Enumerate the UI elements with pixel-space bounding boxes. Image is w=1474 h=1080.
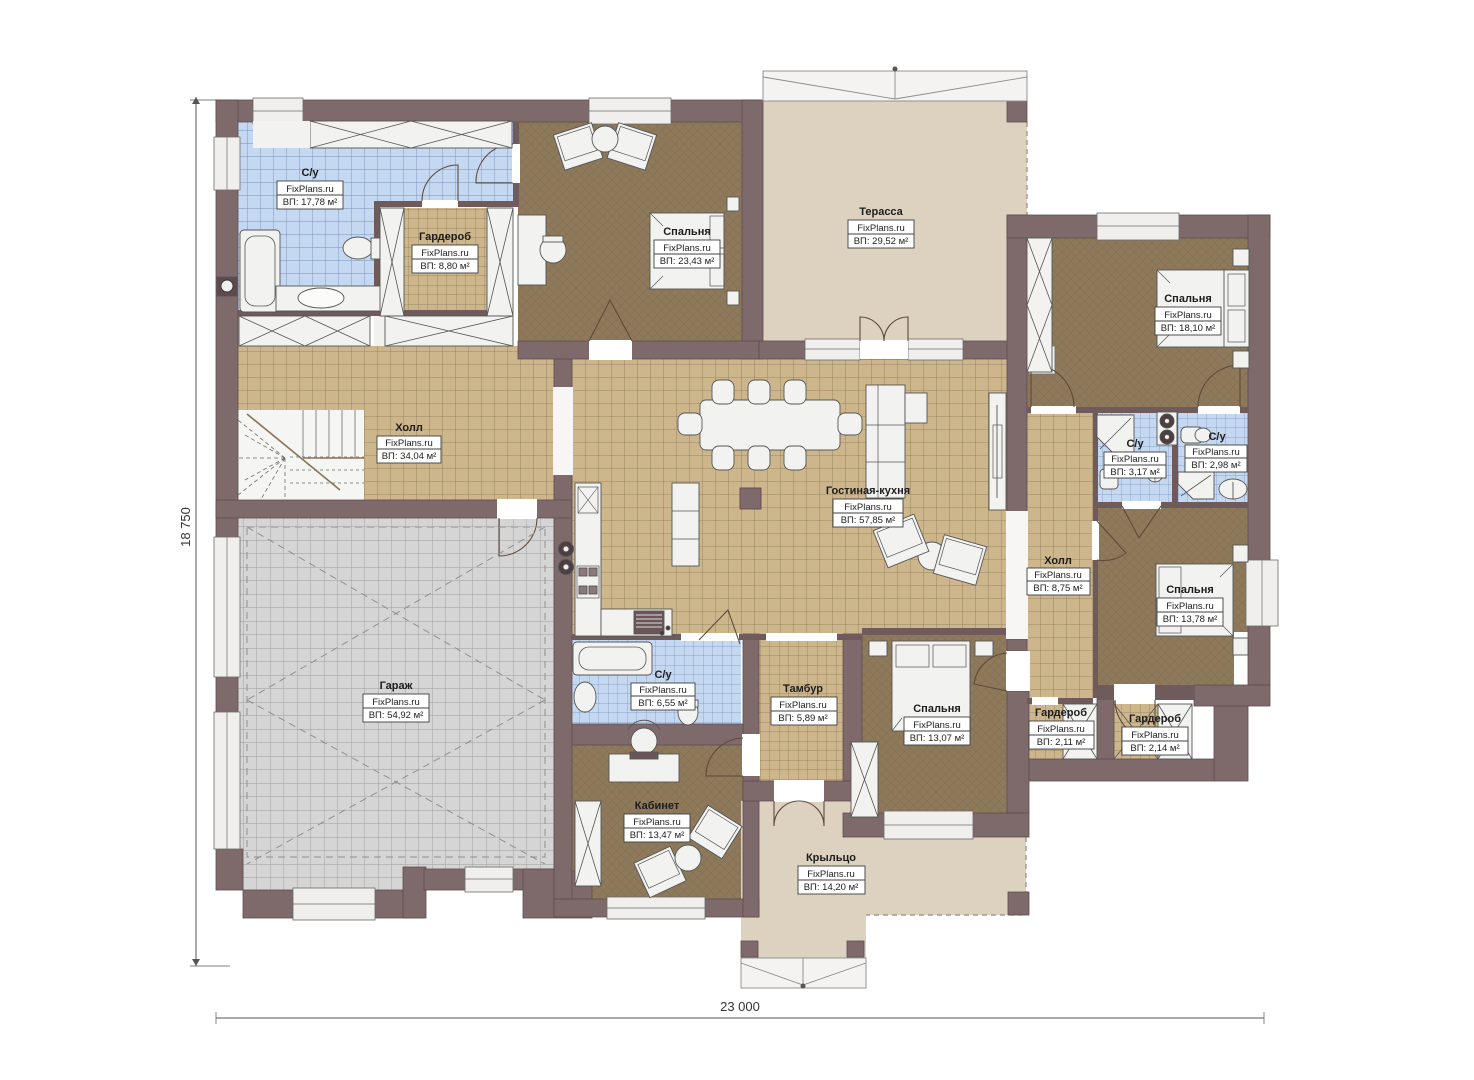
svg-text:FixPlans.ru: FixPlans.ru (913, 720, 961, 731)
svg-text:Спальня: Спальня (913, 703, 961, 715)
svg-text:FixPlans.ru: FixPlans.ru (779, 700, 827, 711)
svg-text:Гостиная-кухня: Гостиная-кухня (826, 485, 910, 497)
svg-text:С/у: С/у (654, 669, 672, 681)
svg-text:FixPlans.ru: FixPlans.ru (663, 243, 711, 254)
svg-text:FixPlans.ru: FixPlans.ru (1034, 570, 1082, 581)
svg-text:FixPlans.ru: FixPlans.ru (633, 817, 681, 828)
svg-text:ВП: 34,04 м²: ВП: 34,04 м² (382, 451, 437, 462)
svg-text:Спальня: Спальня (1166, 584, 1214, 596)
svg-text:ВП: 54,92 м²: ВП: 54,92 м² (369, 710, 424, 721)
svg-text:Спальня: Спальня (663, 226, 711, 238)
svg-text:FixPlans.ru: FixPlans.ru (372, 697, 420, 708)
svg-text:FixPlans.ru: FixPlans.ru (844, 502, 892, 513)
svg-text:С/у: С/у (1126, 438, 1144, 450)
svg-text:FixPlans.ru: FixPlans.ru (1166, 601, 1214, 612)
svg-text:Терасса: Терасса (859, 206, 903, 218)
svg-text:ВП: 57,85 м²: ВП: 57,85 м² (841, 515, 896, 526)
svg-text:ВП: 5,89 м²: ВП: 5,89 м² (778, 713, 827, 724)
svg-text:FixPlans.ru: FixPlans.ru (1164, 310, 1212, 321)
svg-text:Спальня: Спальня (1164, 293, 1212, 305)
svg-text:ВП: 3,17 м²: ВП: 3,17 м² (1110, 467, 1159, 478)
svg-text:ВП: 29,52 м²: ВП: 29,52 м² (854, 236, 909, 247)
svg-text:ВП: 8,80 м²: ВП: 8,80 м² (420, 261, 469, 272)
svg-text:ВП: 2,14 м²: ВП: 2,14 м² (1130, 743, 1179, 754)
svg-text:ВП: 6,55 м²: ВП: 6,55 м² (638, 698, 687, 709)
svg-text:18 750: 18 750 (178, 507, 193, 547)
svg-text:FixPlans.ru: FixPlans.ru (421, 248, 469, 259)
svg-text:FixPlans.ru: FixPlans.ru (1192, 447, 1240, 458)
svg-text:С/у: С/у (1208, 431, 1226, 443)
svg-text:FixPlans.ru: FixPlans.ru (1131, 730, 1179, 741)
svg-text:23 000: 23 000 (720, 999, 760, 1014)
svg-text:FixPlans.ru: FixPlans.ru (857, 223, 905, 234)
svg-text:ВП: 23,43 м²: ВП: 23,43 м² (660, 256, 715, 267)
svg-text:Гараж: Гараж (380, 680, 413, 692)
svg-text:FixPlans.ru: FixPlans.ru (1037, 724, 1085, 735)
svg-text:ВП: 13,07 м²: ВП: 13,07 м² (910, 733, 965, 744)
svg-text:Крыльцо: Крыльцо (806, 852, 856, 864)
svg-text:Гардероб: Гардероб (1035, 707, 1087, 719)
svg-text:Холл: Холл (1044, 555, 1072, 567)
svg-text:Холл: Холл (395, 422, 423, 434)
svg-text:ВП: 2,98 м²: ВП: 2,98 м² (1191, 460, 1240, 471)
svg-text:FixPlans.ru: FixPlans.ru (639, 685, 687, 696)
svg-text:ВП: 14,20 м²: ВП: 14,20 м² (804, 882, 859, 893)
svg-text:ВП: 18,10 м²: ВП: 18,10 м² (1161, 323, 1216, 334)
svg-text:ВП: 13,78 м²: ВП: 13,78 м² (1163, 614, 1218, 625)
svg-text:FixPlans.ru: FixPlans.ru (385, 438, 433, 449)
svg-text:FixPlans.ru: FixPlans.ru (1111, 454, 1159, 465)
svg-text:ВП: 17,78 м²: ВП: 17,78 м² (283, 197, 338, 208)
svg-text:FixPlans.ru: FixPlans.ru (807, 869, 855, 880)
svg-text:С/у: С/у (301, 167, 319, 179)
svg-text:Гардероб: Гардероб (1129, 713, 1181, 725)
svg-text:FixPlans.ru: FixPlans.ru (286, 184, 334, 195)
svg-text:Гардероб: Гардероб (419, 231, 471, 243)
svg-text:ВП: 8,75 м²: ВП: 8,75 м² (1033, 583, 1082, 594)
svg-text:Кабинет: Кабинет (635, 800, 680, 812)
svg-text:Тамбур: Тамбур (783, 683, 823, 695)
svg-text:ВП: 2,11 м²: ВП: 2,11 м² (1037, 737, 1086, 748)
svg-text:ВП: 13,47 м²: ВП: 13,47 м² (630, 830, 685, 841)
